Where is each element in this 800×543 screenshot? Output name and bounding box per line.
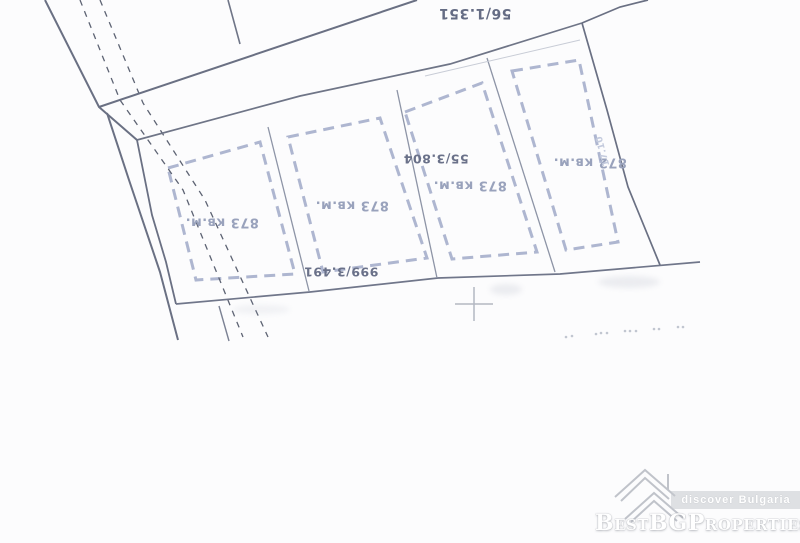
faded-boundary-dot [682, 326, 685, 329]
road-edge-upper [45, 0, 137, 140]
stub-line [219, 306, 229, 341]
parcels-right-boundary [582, 23, 660, 265]
boundary-to-top-edge [582, 0, 648, 23]
parcel-number-55-3-804: 55/3.804 [403, 152, 469, 167]
plot-division-1 [268, 127, 309, 291]
watermark: discover Bulgaria BestBGProperties [595, 458, 800, 543]
plot-3-area-label: 873 кв.м. [433, 178, 507, 193]
scan-smudge [490, 284, 522, 295]
strip-faint-line [425, 40, 580, 76]
plot-2-outline [288, 118, 427, 272]
footpath-dash-left [80, 0, 243, 337]
watermark-brand: BestBGProperties [595, 510, 800, 536]
faded-boundary-dot [571, 335, 574, 338]
parcel-number-999-3-491: 999/3.491 [304, 265, 379, 280]
faded-boundary-dot [600, 332, 603, 335]
faded-boundary-dot [677, 326, 680, 329]
cadastral-sketch-page: 56/1.35155/3.804999/3.491873 кв.м.873 кв… [0, 0, 800, 543]
faded-boundary-dot [595, 333, 598, 336]
faded-boundary-dot [635, 330, 638, 333]
watermark-tagline-band: discover Bulgaria [671, 491, 800, 509]
upper-parcel-boundary [99, 0, 417, 107]
scan-smudge [598, 276, 660, 288]
parcel-number-56-1-351: 56/1.351 [439, 5, 512, 21]
road-edge-lower [107, 113, 178, 340]
faded-boundary-dot [565, 336, 568, 339]
faded-boundary-dot [606, 332, 609, 335]
faded-boundary-dot [629, 330, 632, 333]
faded-boundary-dot [658, 328, 661, 331]
plot-1-area-label: 873 кв.м. [185, 215, 259, 230]
watermark-tagline: discover Bulgaria [681, 494, 790, 506]
faded-boundary-dot [624, 330, 627, 333]
plot-2-area-label: 873 кв.м. [315, 198, 389, 213]
upper-parcel-division [228, 0, 240, 44]
faded-boundary-dot [653, 328, 656, 331]
scan-smudge [232, 305, 290, 314]
plot-3-outline [405, 83, 537, 259]
plot-division-3 [487, 58, 555, 272]
plot-1-outline [168, 142, 295, 280]
plot-4-area-label: 872 кв.м. [553, 155, 627, 170]
